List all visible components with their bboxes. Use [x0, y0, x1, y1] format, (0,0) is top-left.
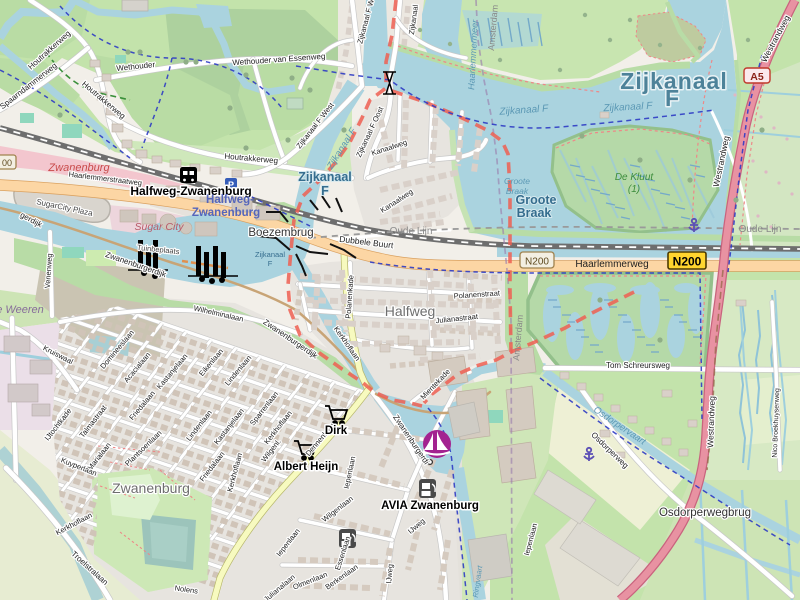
svg-text:Haarlemmerweg: Haarlemmerweg [575, 259, 648, 270]
svg-text:Osdorperwegbrug: Osdorperwegbrug [659, 507, 751, 519]
svg-text:Oude Lijn: Oude Lijn [739, 224, 782, 235]
svg-text:00: 00 [2, 158, 12, 168]
svg-text:Oude Lijn: Oude Lijn [390, 226, 433, 237]
svg-text:Tom Schreursweg: Tom Schreursweg [606, 361, 670, 370]
svg-text:Dirk: Dirk [325, 425, 348, 437]
svg-text:Zijkanaal: Zijkanaal [255, 250, 285, 259]
svg-text:F: F [268, 259, 273, 268]
svg-text:(1): (1) [628, 184, 640, 195]
svg-text:AVIA Zwanenburg: AVIA Zwanenburg [381, 500, 479, 512]
svg-text:A5: A5 [750, 71, 764, 83]
svg-text:N200: N200 [673, 255, 702, 269]
svg-text:IJweg: IJweg [384, 564, 395, 584]
svg-text:F: F [665, 85, 679, 111]
svg-text:N200: N200 [525, 257, 549, 268]
svg-text:Halfweg: Halfweg [385, 303, 436, 319]
svg-text:Zijkanaal: Zijkanaal [298, 170, 352, 184]
svg-text:Braak: Braak [506, 186, 529, 196]
svg-text:Zwanenburg: Zwanenburg [192, 207, 260, 219]
svg-text:Albert Heijn: Albert Heijn [274, 461, 339, 473]
svg-text:e Weeren: e Weeren [0, 304, 44, 316]
svg-text:Braak: Braak [517, 206, 552, 220]
svg-text:Groote: Groote [504, 176, 530, 186]
svg-text:De Kluut: De Kluut [615, 172, 655, 183]
svg-text:Halfweg-: Halfweg- [206, 194, 254, 206]
svg-text:F: F [321, 184, 329, 198]
svg-text:Boezembrug: Boezembrug [248, 227, 313, 239]
svg-text:Westrandweg: Westrandweg [705, 396, 717, 448]
svg-text:Sugar City: Sugar City [134, 221, 184, 233]
svg-text:Zwanenburg: Zwanenburg [112, 480, 190, 496]
